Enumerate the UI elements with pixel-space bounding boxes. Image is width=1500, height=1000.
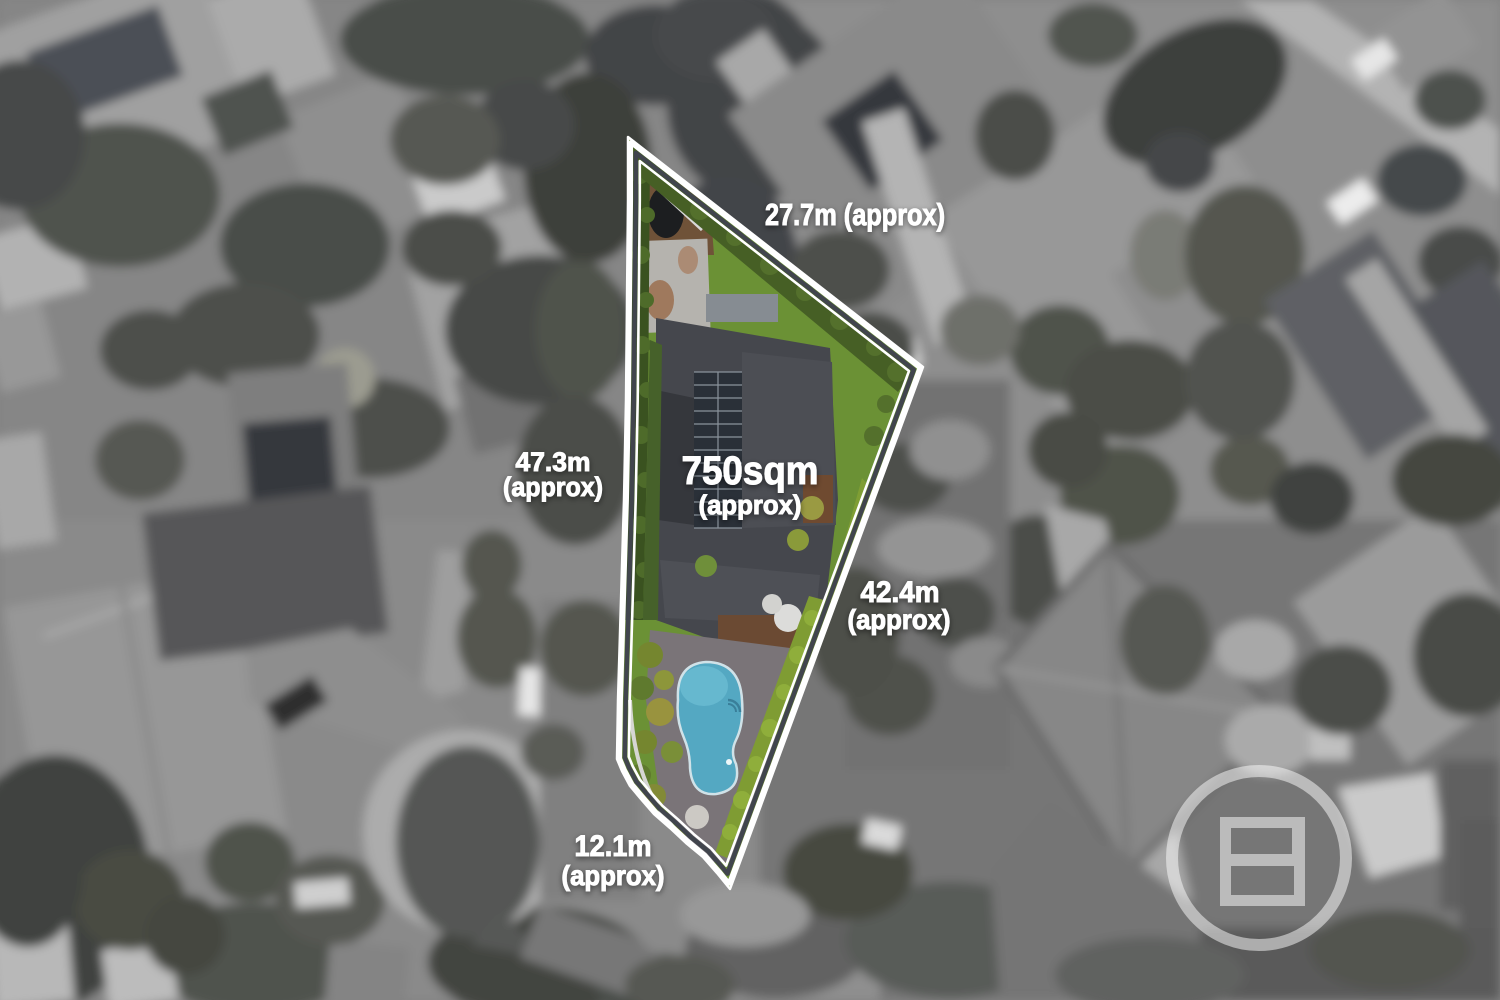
svg-text:750sqm: 750sqm <box>682 449 819 493</box>
svg-text:(approx): (approx) <box>848 604 951 635</box>
svg-text:(approx): (approx) <box>562 860 665 891</box>
svg-text:12.1m: 12.1m <box>575 830 652 863</box>
svg-text:(approx): (approx) <box>699 490 802 520</box>
svg-text:27.7m (approx): 27.7m (approx) <box>765 197 945 232</box>
svg-text:(approx): (approx) <box>503 472 603 502</box>
